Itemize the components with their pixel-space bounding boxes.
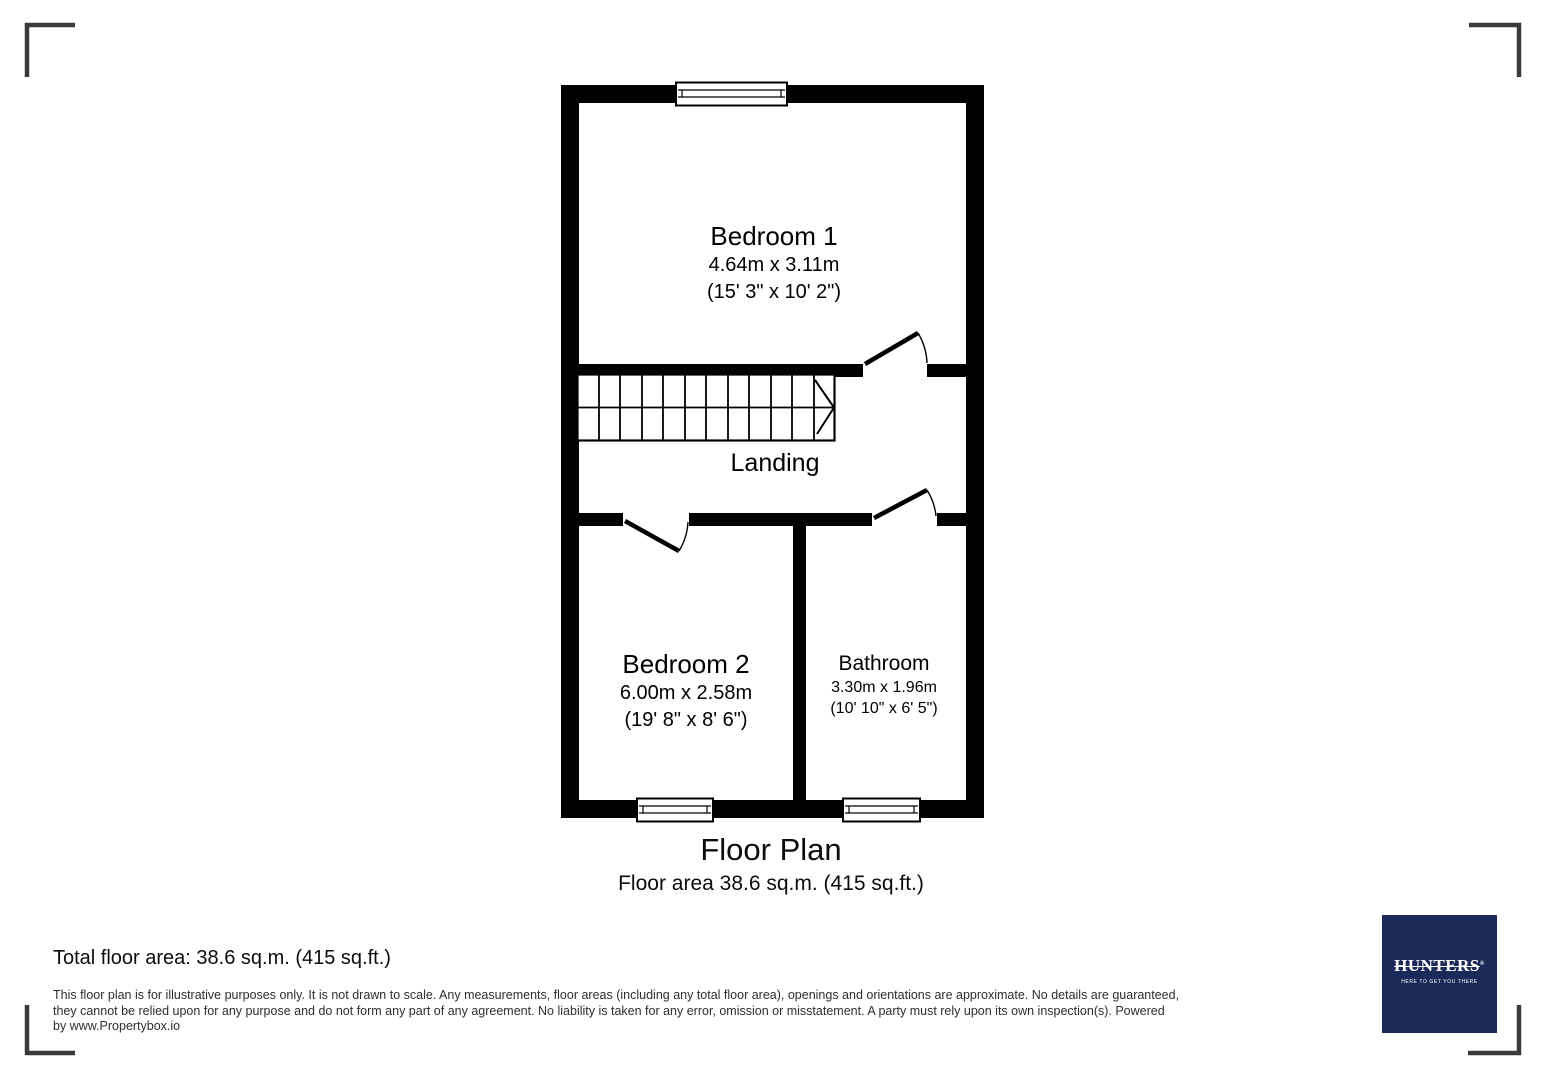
hunters-logo: HUNTERS® HERE TO GET YOU THERE <box>1382 915 1497 1033</box>
bracket-top-left-icon <box>27 25 75 77</box>
plan-subtitle: Floor area 38.6 sq.m. (415 sq.ft.) <box>618 869 924 899</box>
door-bathroom <box>874 490 936 518</box>
room-label-landing: Landing <box>731 449 820 478</box>
wall-landing-bedroom2-left <box>561 513 623 526</box>
wall-bedroom2-bathroom-divider <box>793 513 806 818</box>
disclaimer-line-3: by www.Propertybox.io <box>53 1019 1179 1035</box>
wall-bedroom1-landing-right <box>927 364 966 377</box>
bracket-top-right-icon <box>1469 25 1519 77</box>
registered-mark-icon: ® <box>1480 955 1485 973</box>
door-bedroom1-leaf <box>865 333 918 364</box>
floorplan-drawing <box>0 0 1544 1080</box>
window-bedroom1 <box>676 83 787 106</box>
wall-right <box>966 85 984 818</box>
door-bathroom-arc <box>927 490 936 516</box>
room-name-bathroom: Bathroom <box>830 651 937 677</box>
disclaimer-line-1: This floor plan is for illustrative purp… <box>53 988 1179 1004</box>
room-label-bedroom1: Bedroom 1 4.64m x 3.11m (15' 3" x 10' 2"… <box>707 220 841 306</box>
door-bedroom2 <box>625 521 688 551</box>
room-metric-bathroom: 3.30m x 1.96m <box>830 677 937 698</box>
room-label-bathroom: Bathroom 3.30m x 1.96m (10' 10" x 6' 5") <box>830 651 937 719</box>
wall-landing-bathroom-right <box>937 513 966 526</box>
plan-title: Floor Plan <box>618 831 924 869</box>
floorplan-page: Bedroom 1 4.64m x 3.11m (15' 3" x 10' 2"… <box>0 0 1544 1080</box>
room-name-bedroom1: Bedroom 1 <box>707 220 841 252</box>
room-imperial-bathroom: (10' 10" x 6' 5") <box>830 698 937 719</box>
wall-left <box>561 85 579 818</box>
door-bedroom2-leaf <box>625 521 679 551</box>
room-name-bedroom2: Bedroom 2 <box>620 648 752 680</box>
room-label-bedroom2: Bedroom 2 6.00m x 2.58m (19' 8" x 8' 6") <box>620 648 752 734</box>
hunters-logo-brand: HUNTERS® <box>1394 957 1485 975</box>
total-floor-area: Total floor area: 38.6 sq.m. (415 sq.ft.… <box>53 947 391 970</box>
door-bedroom1-arc <box>918 333 927 363</box>
window-bedroom2 <box>637 799 713 822</box>
disclaimer-text: This floor plan is for illustrative purp… <box>53 988 1179 1035</box>
door-bedroom1 <box>865 333 927 364</box>
disclaimer-line-2: they cannot be relied upon for any purpo… <box>53 1004 1179 1020</box>
room-imperial-bedroom1: (15' 3" x 10' 2") <box>707 279 841 306</box>
room-metric-bedroom1: 4.64m x 3.11m <box>707 252 841 279</box>
hunters-logo-tagline: HERE TO GET YOU THERE <box>1382 979 1497 986</box>
door-bathroom-leaf <box>874 490 927 518</box>
room-imperial-bedroom2: (19' 8" x 8' 6") <box>620 707 752 734</box>
door-bedroom2-arc <box>679 522 688 551</box>
wall-landing-middle <box>689 513 872 526</box>
room-metric-bedroom2: 6.00m x 2.58m <box>620 680 752 707</box>
window-bathroom <box>843 799 920 822</box>
plan-caption: Floor Plan Floor area 38.6 sq.m. (415 sq… <box>618 831 924 899</box>
staircase <box>578 375 835 441</box>
